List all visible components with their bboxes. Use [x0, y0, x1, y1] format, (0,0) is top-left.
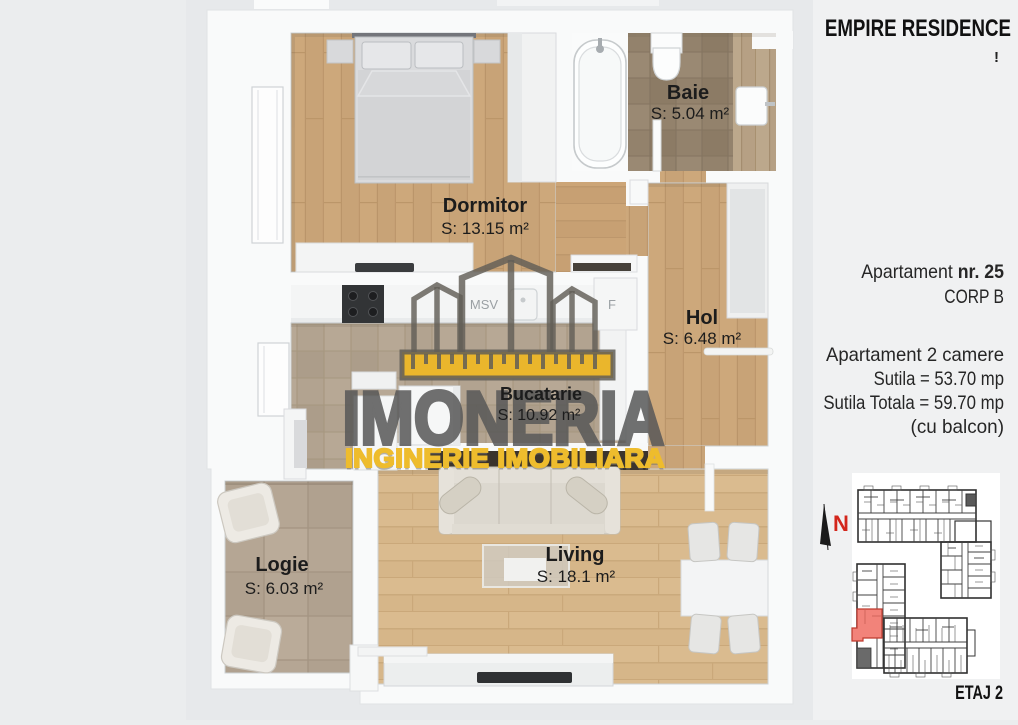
- svg-text:CORP B: CORP B: [944, 286, 1004, 308]
- svg-text:Apartament nr. 25: Apartament nr. 25: [861, 260, 1004, 282]
- svg-text:S: 18.1 m²: S: 18.1 m²: [537, 567, 616, 586]
- svg-text:S: 6.03 m²: S: 6.03 m²: [245, 579, 324, 598]
- svg-text:Apartament 2 camere: Apartament 2 camere: [826, 344, 1004, 365]
- svg-text:Living: Living: [546, 544, 605, 566]
- svg-text:N: N: [833, 511, 849, 536]
- svg-text:Dormitor: Dormitor: [443, 195, 528, 217]
- svg-text:!: !: [994, 49, 999, 66]
- svg-text:S: 10.92 m²: S: 10.92 m²: [498, 407, 581, 424]
- svg-text:MSV: MSV: [470, 297, 499, 312]
- svg-text:S: 5.04 m²: S: 5.04 m²: [651, 104, 730, 123]
- svg-text:ETAJ 2: ETAJ 2: [955, 682, 1003, 703]
- svg-text:S: 6.48 m²: S: 6.48 m²: [663, 329, 742, 348]
- svg-text:(cu balcon): (cu balcon): [911, 417, 1004, 438]
- svg-text:EMPIRE RESIDENCE: EMPIRE RESIDENCE: [825, 15, 1011, 42]
- svg-text:Logie: Logie: [255, 554, 308, 576]
- svg-text:F: F: [608, 297, 616, 312]
- svg-text:Baie: Baie: [667, 82, 709, 104]
- svg-text:Bucatarie: Bucatarie: [500, 384, 582, 404]
- svg-text:Hol: Hol: [686, 307, 718, 329]
- svg-text:S: 13.15 m²: S: 13.15 m²: [441, 219, 529, 238]
- svg-text:Sutila = 53.70 mp: Sutila = 53.70 mp: [874, 368, 1004, 389]
- svg-text:Sutila Totala = 59.70 mp: Sutila Totala = 59.70 mp: [823, 392, 1004, 413]
- svg-text:INGINERIE IMOBILIARA: INGINERIE IMOBILIARA: [345, 444, 665, 473]
